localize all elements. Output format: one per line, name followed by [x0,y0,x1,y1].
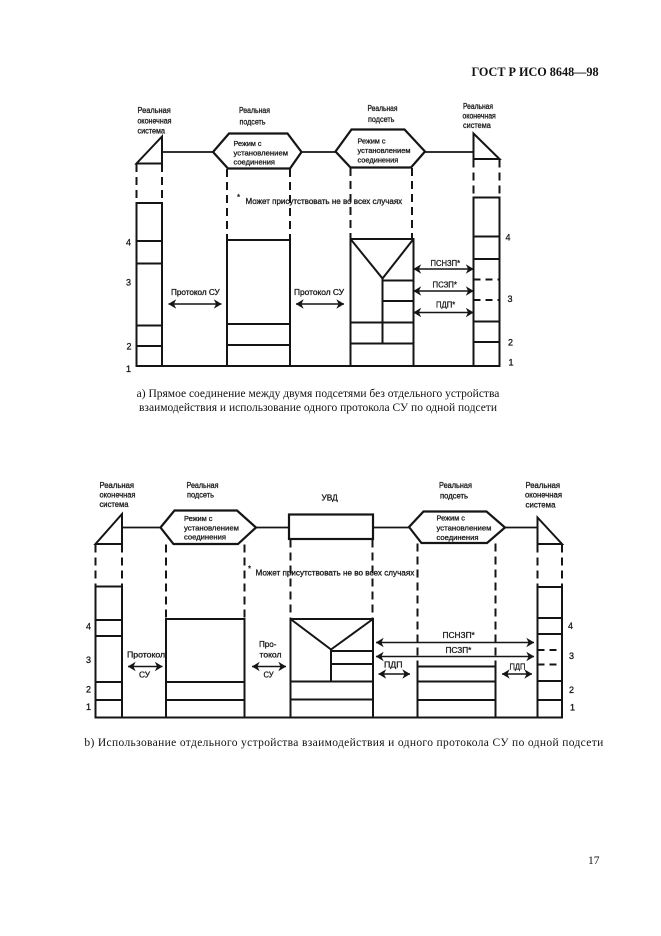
svg-text:Режим с: Режим с [358,136,386,145]
svg-text:токол: токол [260,651,282,660]
svg-text:1: 1 [86,702,91,712]
svg-text:установлением: установлением [234,148,289,157]
svg-text:оконечная: оконечная [100,491,136,500]
svg-text:*: * [237,193,240,202]
svg-text:Протокол СУ: Протокол СУ [171,288,221,297]
svg-text:система: система [138,127,166,136]
svg-text:система: система [463,121,491,130]
svg-text:Реальная: Реальная [239,106,270,115]
svg-text:3: 3 [86,655,91,665]
svg-text:4: 4 [126,238,131,248]
svg-text:соединения: соединения [437,533,479,542]
svg-text:установлением: установлением [184,523,239,532]
svg-text:УВД: УВД [322,494,339,503]
svg-text:система: система [100,500,130,509]
svg-text:Реальная: Реальная [187,481,219,490]
svg-text:ПДП*: ПДП* [436,301,455,310]
svg-text:3: 3 [569,651,574,661]
svg-text:ПСНЗП*: ПСНЗП* [443,631,475,640]
svg-text:1: 1 [509,358,514,368]
svg-text:а) Прямое соединение между дву: а) Прямое соединение между двумя подсетя… [137,388,500,400]
svg-text:2: 2 [126,342,131,352]
svg-text:соединения: соединения [184,533,226,542]
svg-text:Реальная: Реальная [526,481,561,490]
svg-text:оконечная: оконечная [525,491,562,500]
svg-text:Протокол: Протокол [127,651,165,660]
svg-text:подсеть: подсеть [368,115,394,124]
svg-text:ГОСТ Р ИСО 8648—98: ГОСТ Р ИСО 8648—98 [471,65,598,79]
svg-text:подсеть: подсеть [240,118,266,127]
svg-text:1: 1 [126,364,131,374]
svg-text:*: * [248,565,251,574]
svg-text:ПДП: ПДП [510,663,526,672]
svg-text:Может присутствовать не во все: Может присутствовать не во всех случаях [256,569,415,578]
svg-text:ПСЗП*: ПСЗП* [433,281,457,290]
svg-text:2: 2 [508,338,513,348]
svg-text:ПСЗП*: ПСЗП* [446,646,472,655]
svg-text:подсеть: подсеть [187,491,214,500]
svg-text:Режим с: Режим с [437,513,466,522]
svg-text:установлением: установлением [437,523,492,532]
svg-text:Протокол СУ: Протокол СУ [294,288,345,297]
svg-text:взаимодействия и использование: взаимодействия и использование одного пр… [139,402,497,414]
svg-text:Режим с: Режим с [184,514,213,523]
svg-text:1: 1 [570,703,575,713]
svg-text:Реальная: Реальная [368,104,398,113]
svg-text:Реальная: Реальная [138,106,171,115]
svg-text:Реальная: Реальная [100,481,135,490]
svg-text:система: система [526,501,557,510]
svg-text:СУ: СУ [264,671,275,680]
svg-text:4: 4 [506,233,511,243]
svg-text:Реальная: Реальная [439,481,472,490]
svg-text:установлением: установлением [358,146,411,155]
svg-text:4: 4 [86,622,91,632]
svg-text:оконечная: оконечная [463,112,496,121]
svg-text:Режим с: Режим с [234,139,262,148]
svg-text:ПСНЗП*: ПСНЗП* [431,259,461,268]
svg-text:СУ: СУ [139,671,151,680]
svg-text:оконечная: оконечная [138,117,172,126]
svg-text:4: 4 [568,621,573,631]
svg-text:2: 2 [569,685,574,695]
svg-text:Про-: Про- [259,640,277,649]
svg-text:3: 3 [508,294,513,304]
svg-text:Может присутствовать не во все: Может присутствовать не во всех случаях [246,197,403,206]
svg-text:соединения: соединения [234,158,276,167]
svg-text:17: 17 [588,855,600,867]
svg-text:ПДП: ПДП [384,661,403,670]
svg-text:Реальная: Реальная [463,102,493,111]
svg-text:b) Использование отдельного ус: b) Использование отдельного устройства в… [84,737,603,749]
svg-text:2: 2 [86,685,91,695]
svg-text:3: 3 [126,278,131,288]
svg-text:соединения: соединения [358,155,399,164]
svg-text:подсеть: подсеть [440,492,468,501]
